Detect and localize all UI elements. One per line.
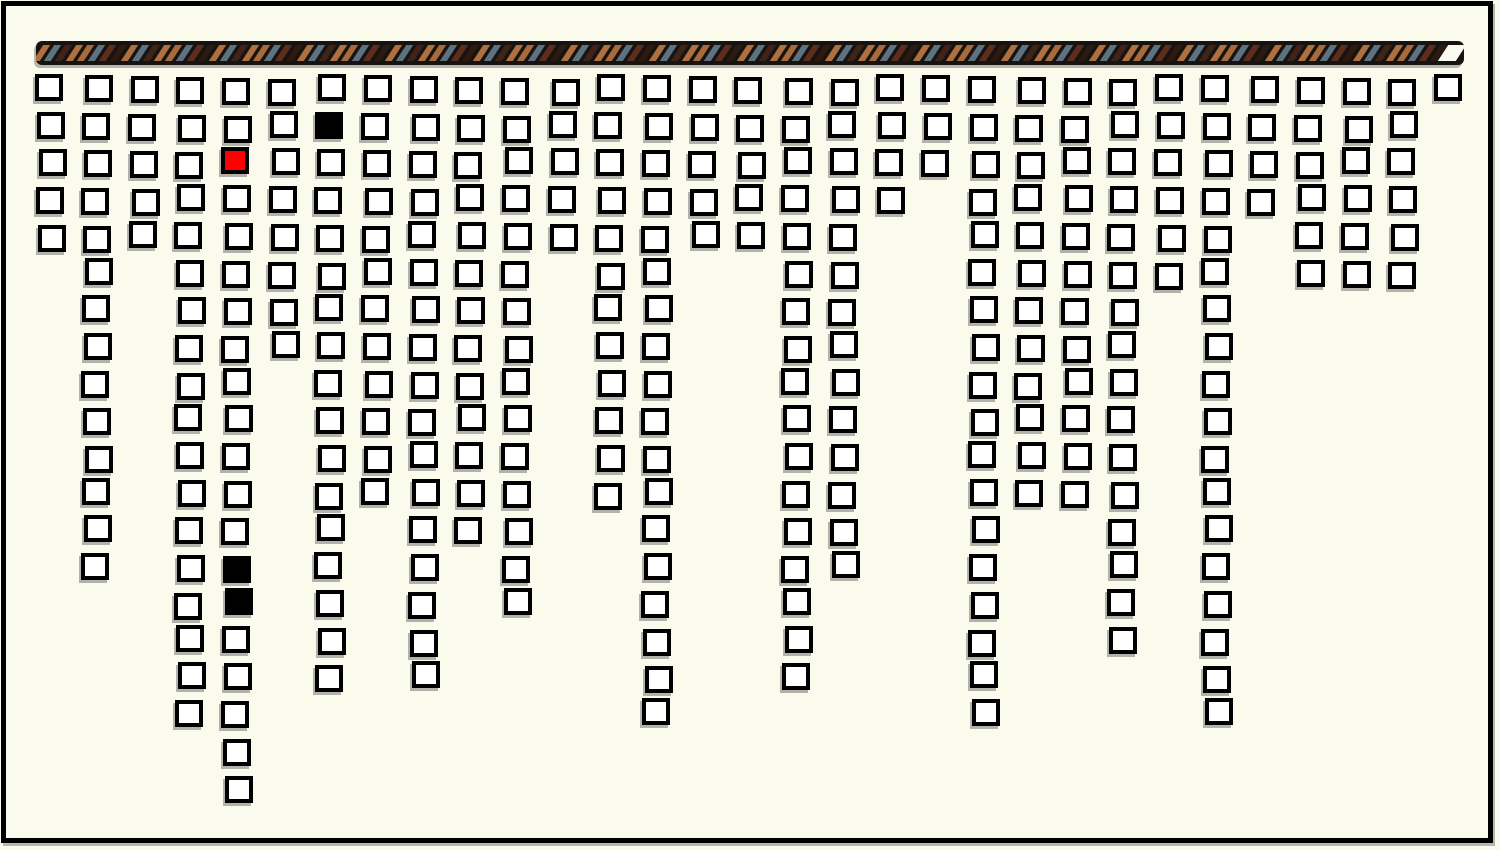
grid-cell xyxy=(412,661,440,688)
grid-cell xyxy=(597,445,625,472)
grid-cell xyxy=(689,76,717,103)
grid-cell xyxy=(178,297,206,324)
grid-cell xyxy=(596,332,624,359)
grid-cell xyxy=(1107,406,1135,433)
grid-cell xyxy=(781,185,809,212)
red-cell xyxy=(221,147,249,174)
grid-cell xyxy=(783,223,811,250)
grid-cell xyxy=(1110,551,1138,578)
grid-cell xyxy=(644,553,672,580)
grid-cell xyxy=(1388,262,1416,289)
grid-cell xyxy=(969,372,997,399)
grid-cell xyxy=(1201,75,1229,102)
grid-cell xyxy=(551,148,579,175)
grid-cell xyxy=(877,187,905,214)
grid-cell xyxy=(410,441,438,468)
grid-cell xyxy=(131,76,159,103)
grid-cell xyxy=(878,112,906,139)
grid-cell xyxy=(1109,444,1137,471)
grid-cell xyxy=(781,368,809,395)
grid-cell xyxy=(642,515,670,542)
grid-cell xyxy=(969,554,997,581)
grid-cell xyxy=(832,551,860,578)
grid-cell xyxy=(876,74,904,101)
grid-cell xyxy=(84,150,112,177)
grid-cell xyxy=(972,334,1000,361)
grid-cell xyxy=(272,148,300,175)
grid-cell xyxy=(502,368,530,395)
grid-cell xyxy=(1388,79,1416,106)
grid-cell xyxy=(503,298,531,325)
grid-cell xyxy=(35,74,63,101)
grid-cell xyxy=(1109,79,1137,106)
grid-cell xyxy=(831,79,859,106)
grid-cell xyxy=(785,261,813,288)
grid-cell xyxy=(1203,295,1231,322)
grid-cell xyxy=(832,369,860,396)
grid-cell xyxy=(454,517,482,544)
grid-cell xyxy=(1202,371,1230,398)
grid-cell xyxy=(318,445,346,472)
grid-cell xyxy=(176,625,204,652)
grid-cell xyxy=(409,516,437,543)
grid-cell xyxy=(971,592,999,619)
grid-cell xyxy=(314,187,342,214)
grid-cell xyxy=(456,373,484,400)
grid-cell xyxy=(692,221,720,248)
grid-cell xyxy=(830,331,858,358)
grid-cell xyxy=(225,405,253,432)
grid-cell xyxy=(364,75,392,102)
grid-cell xyxy=(318,628,346,655)
grid-cell xyxy=(924,113,952,140)
grid-cell xyxy=(221,336,249,363)
grid-cell xyxy=(504,588,532,615)
grid-cell xyxy=(455,260,483,287)
grid-cell xyxy=(642,333,670,360)
grid-cell xyxy=(409,151,437,178)
grid-cell xyxy=(645,295,673,322)
grid-cell xyxy=(39,149,67,176)
grid-cell xyxy=(178,115,206,142)
grid-cell xyxy=(643,629,671,656)
grid-cell xyxy=(828,482,856,509)
grid-cell xyxy=(875,149,903,176)
grid-cell xyxy=(1158,225,1186,252)
grid-cell xyxy=(362,408,390,435)
grid-cell xyxy=(364,258,392,285)
grid-cell xyxy=(221,518,249,545)
grid-cell xyxy=(225,776,253,803)
grid-cell xyxy=(1342,147,1370,174)
grid-cell xyxy=(1108,148,1136,175)
grid-cell xyxy=(222,626,250,653)
grid-cell xyxy=(502,185,530,212)
grid-cell xyxy=(175,517,203,544)
grid-cell xyxy=(1107,224,1135,251)
grid-cell xyxy=(1014,184,1042,211)
grid-cell xyxy=(1391,224,1419,251)
grid-cell xyxy=(411,372,439,399)
grid-cell xyxy=(642,150,670,177)
grid-cell xyxy=(412,479,440,506)
grid-cell xyxy=(502,556,530,583)
grid-cell xyxy=(409,334,437,361)
grid-cell xyxy=(828,111,856,138)
grid-cell xyxy=(223,185,251,212)
grid-cell xyxy=(1202,188,1230,215)
grid-cell xyxy=(598,187,626,214)
grid-cell xyxy=(645,478,673,505)
grid-cell xyxy=(642,698,670,725)
grid-cell xyxy=(81,188,109,215)
grid-cell xyxy=(1065,185,1093,212)
grid-cell xyxy=(82,295,110,322)
grid-cell xyxy=(412,114,440,141)
grid-cell xyxy=(921,150,949,177)
grid-cell xyxy=(782,663,810,690)
grid-cell xyxy=(1156,187,1184,214)
grid-cell xyxy=(782,481,810,508)
board xyxy=(0,0,1500,850)
grid-cell xyxy=(128,114,156,141)
grid-cell xyxy=(365,188,393,215)
grid-cell xyxy=(454,335,482,362)
grid-cell xyxy=(1205,150,1233,177)
grid-cell xyxy=(1015,297,1043,324)
grid-cell xyxy=(1201,446,1229,473)
grid-cell xyxy=(1343,78,1371,105)
grid-cell xyxy=(501,261,529,288)
grid-cell xyxy=(222,443,250,470)
grid-cell xyxy=(316,225,344,252)
grid-cell xyxy=(1110,186,1138,213)
grid-cell xyxy=(130,151,158,178)
grid-cell xyxy=(552,79,580,106)
grid-cell xyxy=(82,113,110,140)
grid-cell xyxy=(1294,115,1322,142)
grid-cell xyxy=(268,262,296,289)
grid-cell xyxy=(1154,149,1182,176)
grid-cell xyxy=(174,593,202,620)
grid-cell xyxy=(1063,147,1091,174)
grid-cell xyxy=(1343,261,1371,288)
grid-cell xyxy=(84,333,112,360)
grid-cell xyxy=(454,152,482,179)
grid-cell xyxy=(458,222,486,249)
grid-cell xyxy=(737,222,765,249)
grid-cell xyxy=(223,368,251,395)
grid-cell xyxy=(597,263,625,290)
grid-cell xyxy=(177,373,205,400)
grid-cell xyxy=(971,409,999,436)
grid-cell xyxy=(595,225,623,252)
grid-cell xyxy=(1204,226,1232,253)
grid-cell xyxy=(643,258,671,285)
grid-cell xyxy=(85,258,113,285)
grid-cell xyxy=(315,483,343,510)
grid-cell xyxy=(922,75,950,102)
grid-cell xyxy=(830,519,858,546)
grid-cell xyxy=(783,405,811,432)
grid-cell xyxy=(1202,553,1230,580)
grid-cell xyxy=(1110,369,1138,396)
grid-cell xyxy=(1297,260,1325,287)
grid-cell xyxy=(1387,148,1415,175)
grid-cell xyxy=(315,665,343,692)
grid-cell xyxy=(645,666,673,693)
grid-cell xyxy=(503,116,531,143)
grid-cell xyxy=(643,75,671,102)
grid-cell xyxy=(1016,222,1044,249)
grid-cell xyxy=(1063,336,1091,363)
grid-cell xyxy=(1108,519,1136,546)
grid-cell xyxy=(1017,335,1045,362)
grid-cell xyxy=(1205,698,1233,725)
grid-cell xyxy=(1248,114,1276,141)
grid-cell xyxy=(314,552,342,579)
grid-cell xyxy=(410,76,438,103)
grid-cell xyxy=(688,151,716,178)
grid-cell xyxy=(970,114,998,141)
grid-cell xyxy=(1201,629,1229,656)
grid-cell xyxy=(81,371,109,398)
grid-cell xyxy=(1389,186,1417,213)
grid-cell xyxy=(505,147,533,174)
black-cell xyxy=(223,556,251,583)
grid-cell xyxy=(594,112,622,139)
grid-cell xyxy=(36,187,64,214)
grid-cell xyxy=(501,78,529,105)
grid-cell xyxy=(1247,189,1275,216)
grid-cell xyxy=(174,404,202,431)
grid-cell xyxy=(361,295,389,322)
grid-cell xyxy=(1111,299,1139,326)
grid-cell xyxy=(735,184,763,211)
grid-cell xyxy=(970,661,998,688)
grid-cell xyxy=(457,297,485,324)
grid-cell xyxy=(691,114,719,141)
grid-cell xyxy=(455,442,483,469)
grid-cell xyxy=(132,189,160,216)
grid-cell xyxy=(501,443,529,470)
grid-cell xyxy=(971,221,999,248)
grid-cell xyxy=(316,590,344,617)
grid-cell xyxy=(505,336,533,363)
grid-cell xyxy=(548,186,576,213)
grid-cell xyxy=(457,115,485,142)
grid-cell xyxy=(223,739,251,766)
grid-cell xyxy=(83,226,111,253)
grid-cell xyxy=(1345,116,1373,143)
grid-cell xyxy=(641,591,669,618)
grid-cell xyxy=(411,554,439,581)
grid-cell xyxy=(178,662,206,689)
grid-cell xyxy=(270,111,298,138)
grid-cell xyxy=(785,443,813,470)
grid-cell xyxy=(830,148,858,175)
grid-cell xyxy=(785,78,813,105)
grid-cell xyxy=(597,74,625,101)
grid-cell xyxy=(178,480,206,507)
grid-cell xyxy=(1155,74,1183,101)
grid-cell xyxy=(1111,482,1139,509)
grid-cell xyxy=(176,77,204,104)
grid-cell xyxy=(1204,408,1232,435)
grid-cell xyxy=(505,518,533,545)
grid-cell xyxy=(1297,77,1325,104)
grid-cell xyxy=(504,223,532,250)
grid-cell xyxy=(1204,591,1232,618)
grid-cell xyxy=(318,263,346,290)
grid-cell xyxy=(781,556,809,583)
grid-cell xyxy=(317,149,345,176)
grid-cell xyxy=(83,408,111,435)
grid-cell xyxy=(1298,184,1326,211)
grid-cell xyxy=(269,186,297,213)
grid-cell xyxy=(1062,223,1090,250)
grid-cell xyxy=(829,224,857,251)
grid-cell xyxy=(550,224,578,251)
grid-cell xyxy=(784,518,812,545)
grid-cell xyxy=(734,77,762,104)
grid-cell xyxy=(129,221,157,248)
grid-cell xyxy=(1062,405,1090,432)
grid-cell xyxy=(1018,442,1046,469)
grid-cell xyxy=(411,189,439,216)
grid-cell xyxy=(829,406,857,433)
grid-cell xyxy=(1061,298,1089,325)
grid-cell xyxy=(690,189,718,216)
grid-cell xyxy=(362,226,390,253)
grid-cell xyxy=(968,259,996,286)
grid-cell xyxy=(968,441,996,468)
grid-cell xyxy=(365,371,393,398)
grid-cell xyxy=(1065,368,1093,395)
grid-cell xyxy=(644,188,672,215)
grid-cell xyxy=(1061,481,1089,508)
grid-cell xyxy=(643,446,671,473)
grid-cell xyxy=(85,75,113,102)
grid-cell xyxy=(736,115,764,142)
grid-cell xyxy=(364,446,392,473)
grid-cell xyxy=(784,336,812,363)
grid-cell xyxy=(1064,78,1092,105)
grid-cell xyxy=(361,478,389,505)
grid-cell xyxy=(317,514,345,541)
grid-cell xyxy=(1014,373,1042,400)
grid-cell xyxy=(972,516,1000,543)
grid-cell xyxy=(594,483,622,510)
grid-cell xyxy=(224,298,252,325)
grid-cell xyxy=(594,294,622,321)
grid-cell xyxy=(549,111,577,138)
grid-cell xyxy=(598,370,626,397)
grid-cell xyxy=(1109,262,1137,289)
grid-cell xyxy=(175,335,203,362)
grid-cell xyxy=(1203,478,1231,505)
grid-cell xyxy=(645,113,673,140)
grid-cell xyxy=(1107,589,1135,616)
grid-cell xyxy=(784,147,812,174)
grid-cell xyxy=(271,224,299,251)
grid-cell xyxy=(1015,115,1043,142)
grid-cell xyxy=(37,112,65,139)
grid-cell xyxy=(174,222,202,249)
grid-cell xyxy=(970,479,998,506)
grid-cell xyxy=(1341,223,1369,250)
grid-cell xyxy=(221,701,249,728)
grid-cell xyxy=(641,408,669,435)
grid-cell xyxy=(408,592,436,619)
grid-cell xyxy=(1018,260,1046,287)
grid-cell xyxy=(503,481,531,508)
grid-cell xyxy=(412,296,440,323)
grid-cell xyxy=(1109,627,1137,654)
grid-cell xyxy=(268,79,296,106)
grid-cell xyxy=(1390,111,1418,138)
grid-cell xyxy=(410,259,438,286)
grid-cell xyxy=(783,588,811,615)
grid-cell xyxy=(644,371,672,398)
grid-cell xyxy=(315,294,343,321)
grid-cell xyxy=(272,331,300,358)
grid-cell xyxy=(408,221,436,248)
grid-cell xyxy=(1064,443,1092,470)
grid-cell xyxy=(176,442,204,469)
grid-cell xyxy=(831,444,859,471)
grid-cell xyxy=(1018,77,1046,104)
grid-cell xyxy=(1155,263,1183,290)
grid-cell xyxy=(595,407,623,434)
black-cell xyxy=(315,112,343,139)
grid-cell xyxy=(972,699,1000,726)
grid-cell xyxy=(1434,74,1462,101)
grid-cell xyxy=(785,626,813,653)
grid-cell xyxy=(81,553,109,580)
grid-cell xyxy=(85,446,113,473)
grid-cell xyxy=(1251,76,1279,103)
grid-cell xyxy=(1015,480,1043,507)
grid-cell xyxy=(361,113,389,140)
grid-cell xyxy=(175,152,203,179)
grid-cell xyxy=(832,186,860,213)
grid-cell xyxy=(1108,331,1136,358)
grid-cell xyxy=(738,152,766,179)
grid-cell xyxy=(1205,515,1233,542)
grid-cell xyxy=(1157,112,1185,139)
grid-cell xyxy=(1203,666,1231,693)
grid-cell xyxy=(177,555,205,582)
grid-cell xyxy=(175,700,203,727)
grid-cell xyxy=(176,260,204,287)
grid-cell xyxy=(363,150,391,177)
grid-cell xyxy=(831,262,859,289)
grid-cell xyxy=(1296,152,1324,179)
grid-cell xyxy=(1250,151,1278,178)
grid-cell xyxy=(972,151,1000,178)
grid-cell xyxy=(316,407,344,434)
grid-cell xyxy=(82,478,110,505)
grid-cell xyxy=(1344,185,1372,212)
grid-cell xyxy=(1061,116,1089,143)
grid-cell xyxy=(314,370,342,397)
grid-cell xyxy=(222,78,250,105)
grid-cell xyxy=(224,481,252,508)
grid-cell xyxy=(1016,404,1044,431)
grid-cell xyxy=(224,663,252,690)
grid-cell xyxy=(457,480,485,507)
